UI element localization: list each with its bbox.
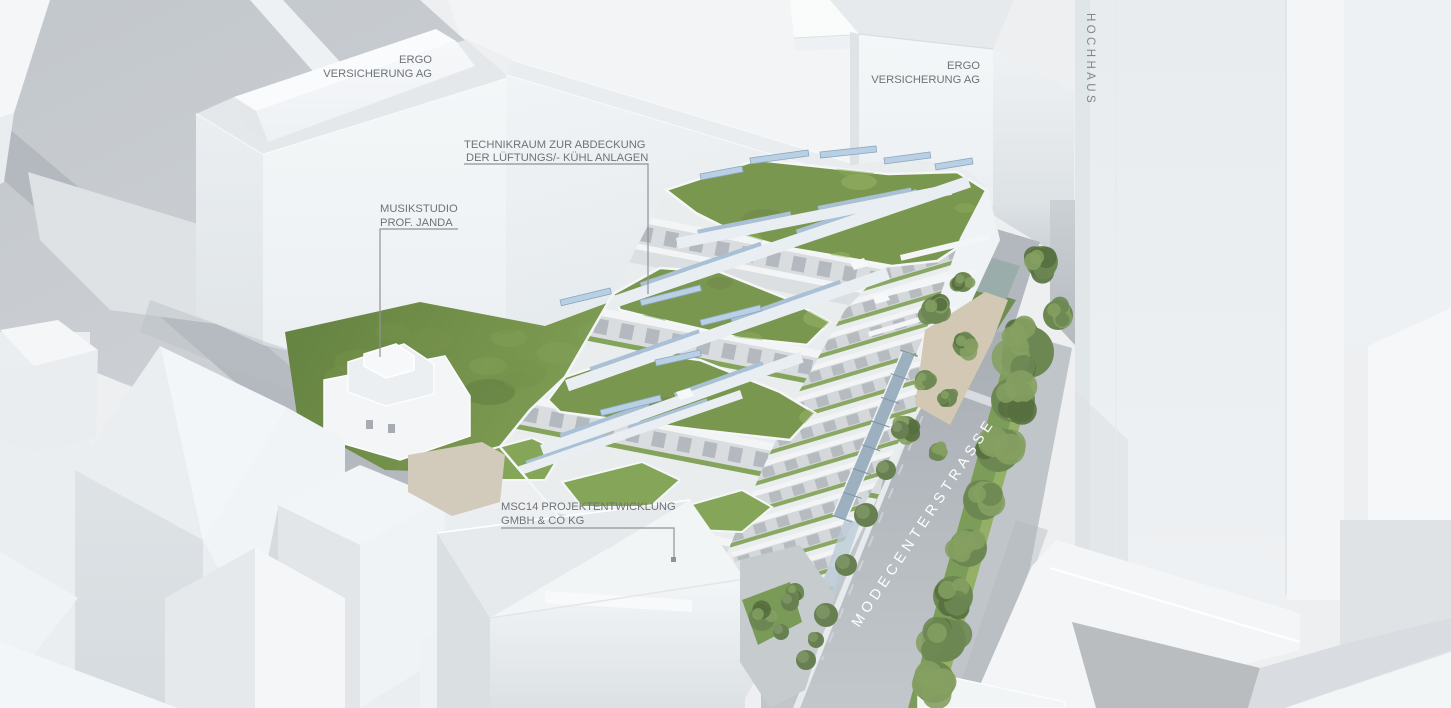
svg-text:HOCHHAUS: HOCHHAUS [1084, 13, 1096, 106]
svg-text:PROF. JANDA: PROF. JANDA [380, 217, 453, 229]
svg-text:DER LÜFTUNGS/- KÜHL ANLAGEN: DER LÜFTUNGS/- KÜHL ANLAGEN [466, 152, 648, 164]
svg-text:VERSICHERUNG AG: VERSICHERUNG AG [323, 68, 432, 80]
svg-text:ERGO: ERGO [399, 54, 432, 66]
svg-text:VERSICHERUNG AG: VERSICHERUNG AG [871, 74, 980, 86]
svg-text:MUSIKSTUDIO: MUSIKSTUDIO [380, 203, 458, 215]
svg-text:TECHNIKRAUM ZUR ABDECKUNG: TECHNIKRAUM ZUR ABDECKUNG [464, 139, 646, 151]
svg-text:MSC14 PROJEKTENTWICKLUNG: MSC14 PROJEKTENTWICKLUNG [501, 501, 676, 513]
svg-text:GMBH & CO KG: GMBH & CO KG [501, 515, 584, 527]
svg-text:ERGO: ERGO [947, 60, 980, 72]
